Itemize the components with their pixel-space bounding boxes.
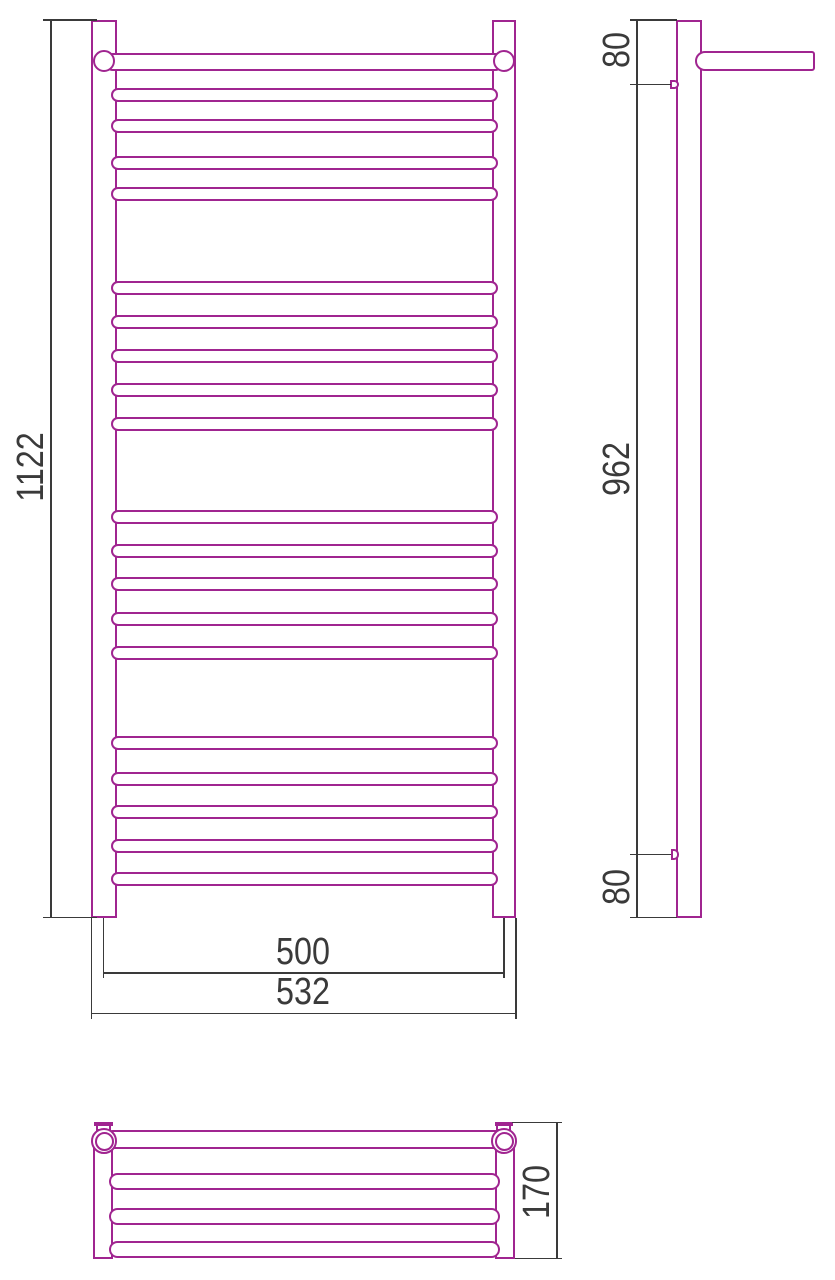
dim-500-extension-right [503, 918, 505, 978]
dim-532-extension-right [515, 918, 517, 1019]
rung [111, 510, 498, 524]
rung [111, 872, 498, 886]
rung [111, 544, 498, 558]
towel-rail-technical-drawing: 1122 500 532 80 962 80 170 [0, 0, 835, 1280]
side-wall-bracket-top [670, 80, 679, 89]
rung [111, 646, 498, 660]
dim-170-extension-top [512, 1122, 562, 1124]
dim-height-extension-bottom [43, 917, 97, 919]
top-right-nipple-lip [495, 1122, 514, 1126]
dim-80-top-label: 80 [598, 32, 636, 68]
dim-side-extension-bracket-bottom [630, 854, 671, 856]
dim-170-extension-bottom [515, 1258, 562, 1260]
front-right-mount-circle [493, 50, 515, 72]
dim-170-label: 170 [518, 1165, 556, 1219]
rung [111, 417, 498, 431]
rung [109, 1208, 500, 1225]
rung [111, 839, 498, 853]
rung [111, 772, 498, 786]
side-post [676, 20, 702, 918]
front-collector-bar [104, 53, 504, 71]
rung [109, 1173, 500, 1190]
rung [111, 736, 498, 750]
rung [111, 119, 498, 133]
dim-532-extension-left [91, 918, 93, 1019]
rung [109, 1241, 500, 1258]
rung [111, 187, 498, 201]
rung [111, 88, 498, 102]
dim-500-extension-left [103, 918, 105, 978]
side-shelf-arm [695, 51, 815, 72]
side-wall-bracket-bottom [671, 849, 680, 860]
dim-962-label: 962 [598, 442, 636, 496]
front-left-mount-circle [93, 50, 115, 72]
rung [111, 281, 498, 295]
top-right-mount-inner-circle [495, 1132, 514, 1151]
rung [111, 383, 498, 397]
top-left-arm [93, 1141, 113, 1259]
rung [111, 577, 498, 591]
dim-80-bottom-label: 80 [598, 869, 636, 905]
top-left-mount-inner-circle [95, 1132, 114, 1151]
rung [111, 156, 498, 170]
rung [111, 805, 498, 819]
dim-side-extension-bracket-top [630, 84, 671, 86]
dim-500-label: 500 [276, 933, 330, 971]
rung [111, 612, 498, 626]
dim-side-extension-bottom [630, 917, 677, 919]
dim-height-label: 1122 [12, 432, 50, 501]
rung [111, 315, 498, 329]
top-right-arm [495, 1141, 515, 1259]
rung [111, 349, 498, 363]
top-collector-tube [104, 1130, 504, 1149]
top-left-nipple-lip [94, 1122, 113, 1126]
dim-532-label: 532 [276, 973, 330, 1011]
